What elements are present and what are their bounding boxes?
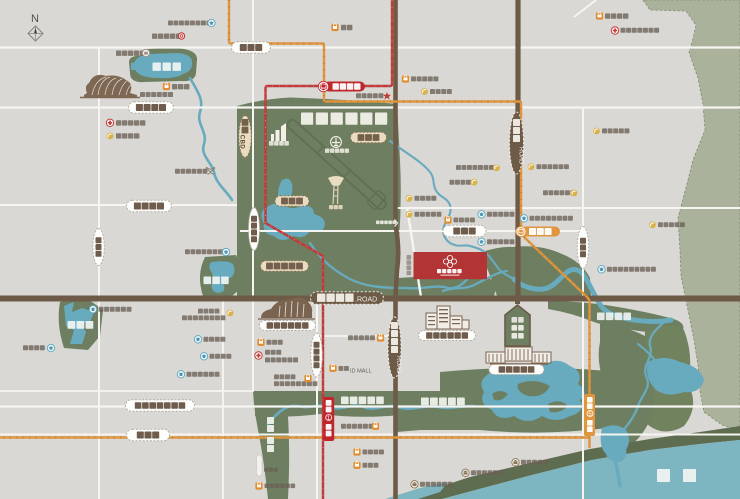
svg-text:CBD: CBD	[238, 135, 244, 150]
svg-text:.ROAD: .ROAD	[355, 297, 377, 304]
svg-text:ROAD: ROAD	[518, 147, 524, 165]
svg-text:ROAD: ROAD	[395, 356, 401, 374]
svg-text:ID MALL: ID MALL	[350, 368, 372, 374]
svg-text:N: N	[31, 13, 39, 25]
